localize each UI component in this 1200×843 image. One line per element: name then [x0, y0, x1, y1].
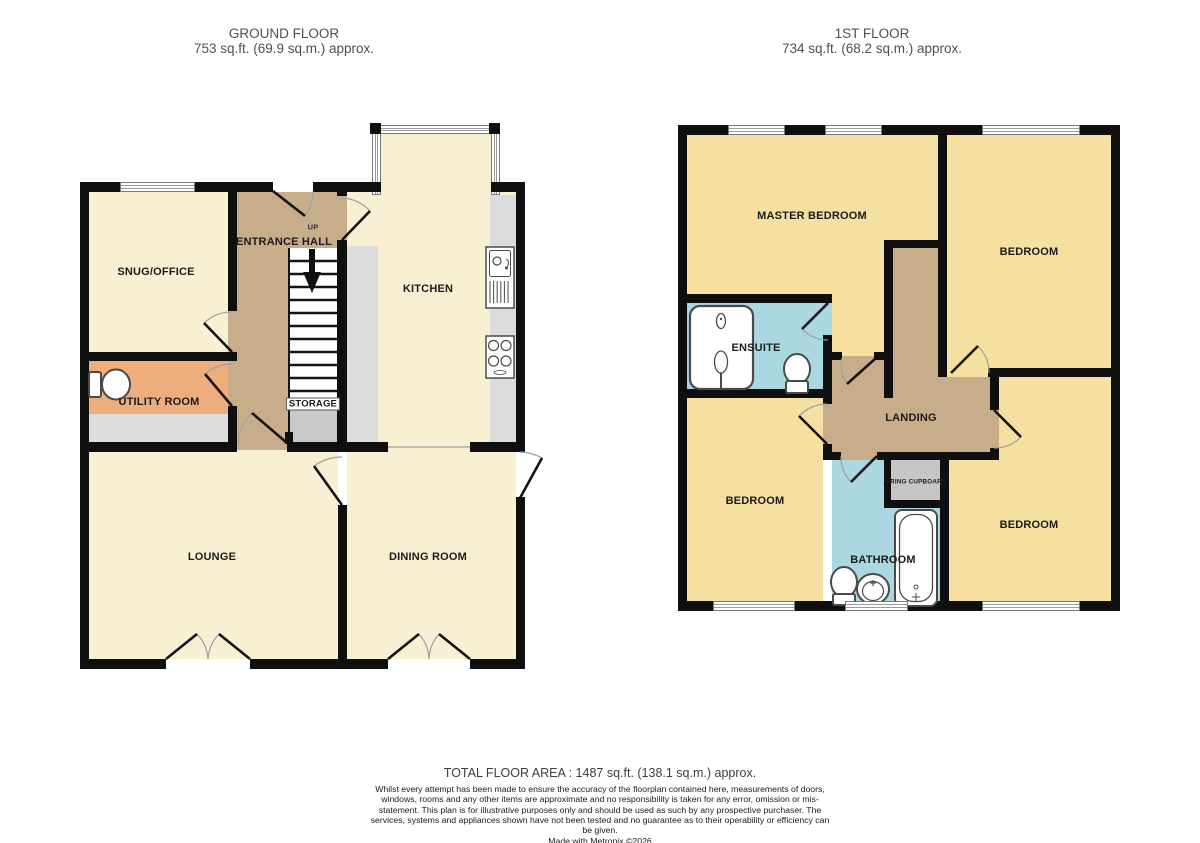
ensuite-toilet-icon — [784, 354, 810, 393]
room-label-ensuite: ENSUITE — [731, 342, 780, 354]
room-label-airing-cupboard: AIRING CUPBOARD — [883, 479, 946, 486]
room-label-storage: STORAGE — [286, 398, 340, 411]
ground-floor-title: GROUND FLOOR — [194, 27, 374, 42]
stairs-up-label: UP — [308, 223, 319, 232]
bay-window-post — [372, 182, 381, 192]
room-label-snug-office: SNUG/OFFICE — [117, 266, 194, 278]
room-label-utility-room: UTILITY ROOM — [118, 396, 199, 408]
room-label-dining-room: DINING ROOM — [389, 551, 467, 563]
bay-window-post — [491, 182, 500, 192]
ground-floor-area: 753 sq.ft. (69.9 sq.m.) approx. — [194, 42, 374, 57]
room-label-bathroom: BATHROOM — [850, 554, 916, 566]
first-floor-plan — [678, 125, 1120, 611]
bay-window-post — [489, 123, 500, 134]
hob-icon — [486, 336, 514, 378]
bedroom-tr-window — [982, 125, 1080, 135]
floorplan-page: GROUND FLOOR 753 sq.ft. (69.9 sq.m.) app… — [0, 0, 1200, 843]
room-label-bedroom-bottom-right: BEDROOM — [1000, 519, 1059, 531]
bedroom-bl-window — [713, 601, 795, 611]
first-floor-area: 734 sq.ft. (68.2 sq.m.) approx. — [782, 42, 962, 57]
kitchen-sink-icon — [486, 247, 514, 308]
credit-text: Made with Metropix ©2026 — [365, 836, 835, 843]
room-label-bedroom-top-right: BEDROOM — [1000, 246, 1059, 258]
first-floor-title: 1ST FLOOR — [782, 27, 962, 42]
first-floor-header: 1ST FLOOR 734 sq.ft. (68.2 sq.m.) approx… — [782, 27, 962, 56]
room-label-entrance-hall: ENTRANCE HALL — [236, 236, 332, 248]
total-floor-area: TOTAL FLOOR AREA : 1487 sq.ft. (138.1 sq… — [365, 766, 835, 780]
room-label-kitchen: KITCHEN — [403, 283, 453, 295]
room-label-master-bedroom: MASTER BEDROOM — [757, 210, 867, 222]
ground-floor-header: GROUND FLOOR 753 sq.ft. (69.9 sq.m.) app… — [194, 27, 374, 56]
room-label-landing: LANDING — [885, 412, 937, 424]
master-bedroom-window — [728, 125, 785, 135]
bedroom-br-window — [982, 601, 1080, 611]
utility-toilet-icon — [89, 370, 130, 400]
master-bedroom-window — [825, 125, 882, 135]
snug-window — [120, 182, 195, 192]
bathroom-window — [845, 601, 908, 611]
room-label-lounge: LOUNGE — [188, 551, 236, 563]
room-label-bedroom-bottom-left: BEDROOM — [726, 495, 785, 507]
bathroom-toilet-icon — [831, 567, 857, 605]
disclaimer-text: Whilst every attempt has been made to en… — [365, 784, 835, 835]
bay-window-frame — [372, 125, 500, 134]
bay-window-post — [370, 123, 381, 134]
bathroom-sink-icon — [857, 574, 889, 604]
footer: TOTAL FLOOR AREA : 1487 sq.ft. (138.1 sq… — [365, 766, 835, 843]
